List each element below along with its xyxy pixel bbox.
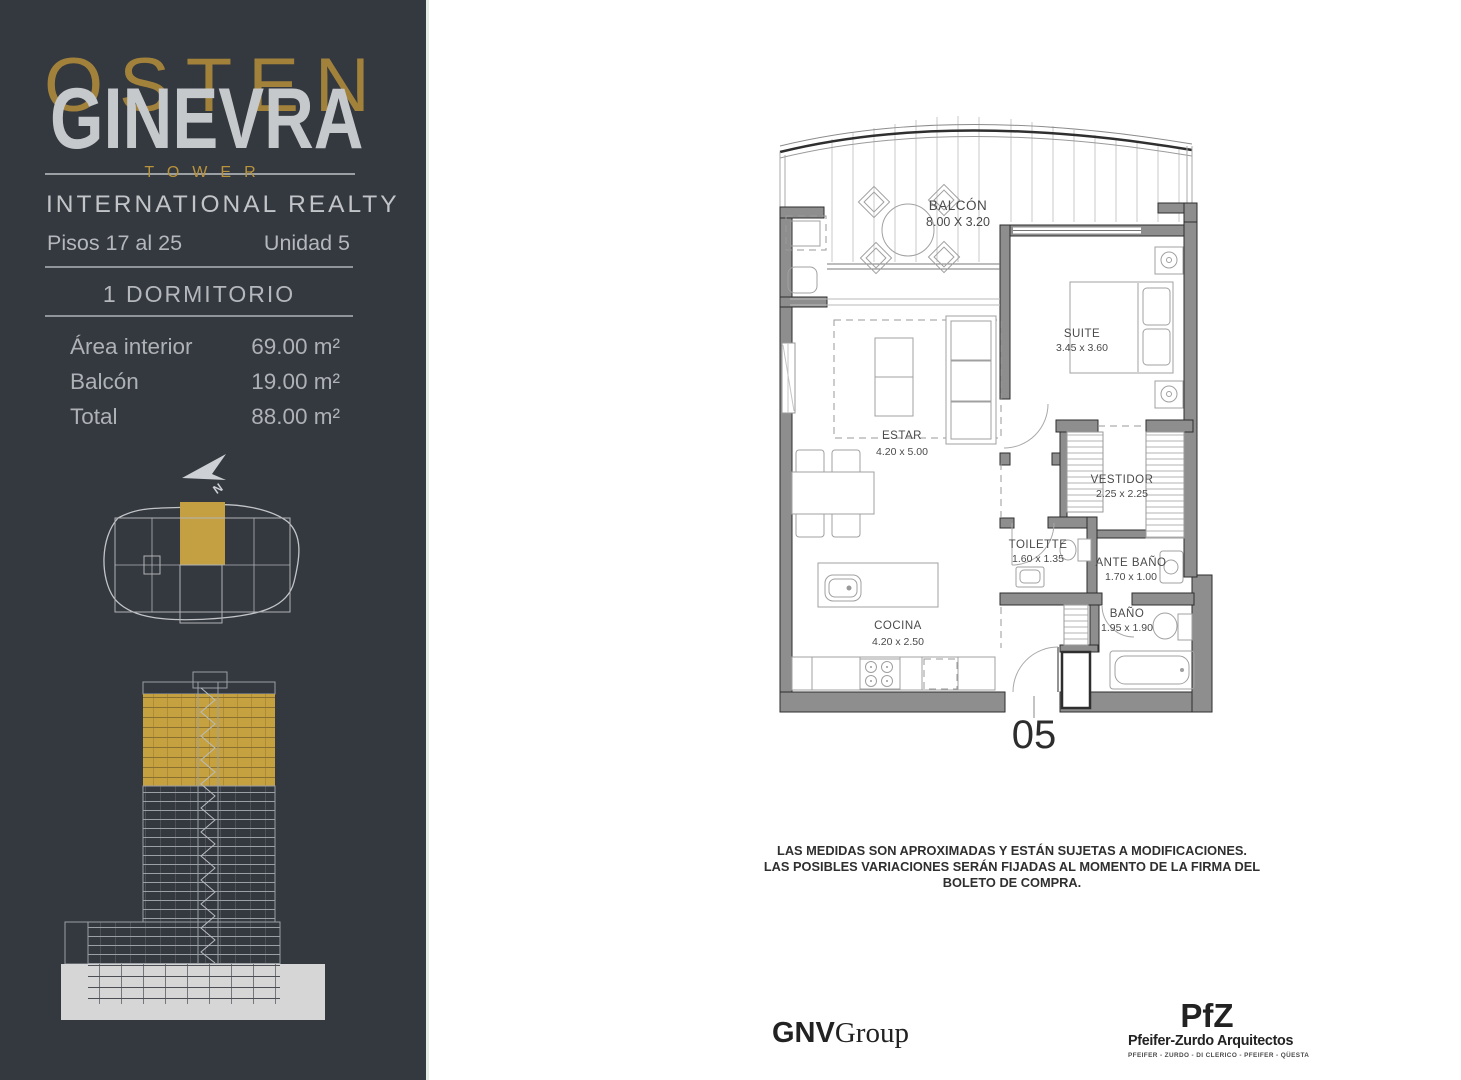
- building-elevation: [55, 658, 340, 1033]
- balcony-rail: [780, 124, 1192, 207]
- room-dims-antebano: 1.70 x 1.00: [1105, 571, 1157, 583]
- highlighted-unit: [180, 502, 225, 565]
- architect-logo-block: PfZ Pfeifer-Zurdo Arquitectos PFEIFER - …: [1128, 999, 1286, 1059]
- area-label: Total: [70, 404, 118, 430]
- toilet: [1153, 613, 1177, 639]
- floors-label: Pisos 17 al 25: [47, 231, 182, 256]
- key-plan: [88, 490, 310, 635]
- area-label: Área interior: [70, 334, 193, 360]
- stove: [860, 659, 900, 689]
- floor-plan: BALCÓN 8.00 X 3.20 SUITE 3.45 x 3.60 EST…: [755, 95, 1245, 755]
- architect-name: Pfeifer-Zurdo Arquitectos: [1128, 1033, 1286, 1049]
- tower-label: TOWER: [45, 164, 355, 182]
- entry-column: [1062, 652, 1090, 708]
- room-label-toilette: TOILETTE: [1009, 539, 1068, 551]
- room-dims-balcon: 8.00 X 3.20: [926, 215, 990, 229]
- area-table: Área interior 69.00 m² Balcón 19.00 m² T…: [70, 334, 340, 439]
- room-dims-suite: 3.45 x 3.60: [1056, 342, 1108, 354]
- podium: [88, 922, 280, 964]
- brand-subtitle: INTERNATIONAL REALTY: [46, 191, 400, 219]
- room-label-antebano: ANTE BAÑO: [1096, 556, 1167, 569]
- room-label-balcon: BALCÓN: [929, 198, 988, 213]
- room-dims-toilette: 1.60 x 1.35: [1012, 553, 1064, 565]
- area-value: 69.00 m²: [251, 334, 340, 360]
- dining-set: [792, 450, 874, 537]
- area-row: Total 88.00 m²: [70, 404, 340, 430]
- room-label-cocina: COCINA: [874, 620, 922, 632]
- unit-label: Unidad 5: [264, 231, 350, 256]
- brand-name: GINEVRA: [50, 76, 363, 162]
- sidebar: OSTEN GINEVRA TOWER INTERNATIONAL REALTY…: [0, 0, 429, 1080]
- room-label-suite: SUITE: [1064, 328, 1100, 340]
- divider-line: [45, 266, 353, 268]
- nightstand: [1155, 381, 1183, 408]
- kitchen-island: [818, 563, 938, 607]
- developer-logo: GNVGroup: [772, 1017, 909, 1050]
- tower-divider: TOWER: [45, 164, 355, 184]
- dishwasher: [924, 659, 957, 689]
- room-dims-bano: 1.95 x 1.90: [1101, 622, 1153, 634]
- area-value: 88.00 m²: [251, 404, 340, 430]
- room-label-vestidor: VESTIDOR: [1091, 474, 1154, 486]
- unit-type-label: 1 DORMITORIO: [45, 281, 353, 308]
- disclaimer-line2: LAS POSIBLES VARIACIONES SERÁN FIJADAS A…: [756, 859, 1268, 891]
- balcony-table: [882, 204, 934, 256]
- disclaimer-line1: LAS MEDIDAS SON APROXIMADAS Y ESTÁN SUJE…: [756, 843, 1268, 859]
- kitchen-counter: [792, 657, 995, 690]
- room-label-estar: ESTAR: [882, 430, 922, 442]
- area-row: Área interior 69.00 m²: [70, 334, 340, 360]
- architect-logo: PfZ: [1128, 999, 1286, 1032]
- room-label-bano: BAÑO: [1110, 607, 1145, 620]
- developer-logo-bold: GNV: [772, 1017, 835, 1049]
- area-row: Balcón 19.00 m²: [70, 369, 340, 395]
- room-dims-cocina: 4.20 x 2.50: [872, 636, 924, 648]
- disclaimer: LAS MEDIDAS SON APROXIMADAS Y ESTÁN SUJE…: [756, 843, 1268, 891]
- developer-logo-serif: Group: [835, 1017, 909, 1049]
- divider-line: [45, 315, 353, 317]
- area-label: Balcón: [70, 369, 139, 395]
- living-furniture: [792, 316, 1001, 690]
- unit-number: 05: [1012, 713, 1057, 755]
- room-dims-vestidor: 2.25 x 2.25: [1096, 488, 1148, 500]
- tower-floors: [143, 786, 275, 922]
- architect-partners: PFEIFER - ZURDO - DI CLERICO - PFEIFER -…: [1128, 1052, 1286, 1059]
- room-dims-estar: 4.20 x 5.00: [876, 446, 928, 458]
- area-value: 19.00 m²: [251, 369, 340, 395]
- floors-unit-row: Pisos 17 al 25 Unidad 5: [47, 231, 350, 256]
- nightstand: [1155, 247, 1183, 274]
